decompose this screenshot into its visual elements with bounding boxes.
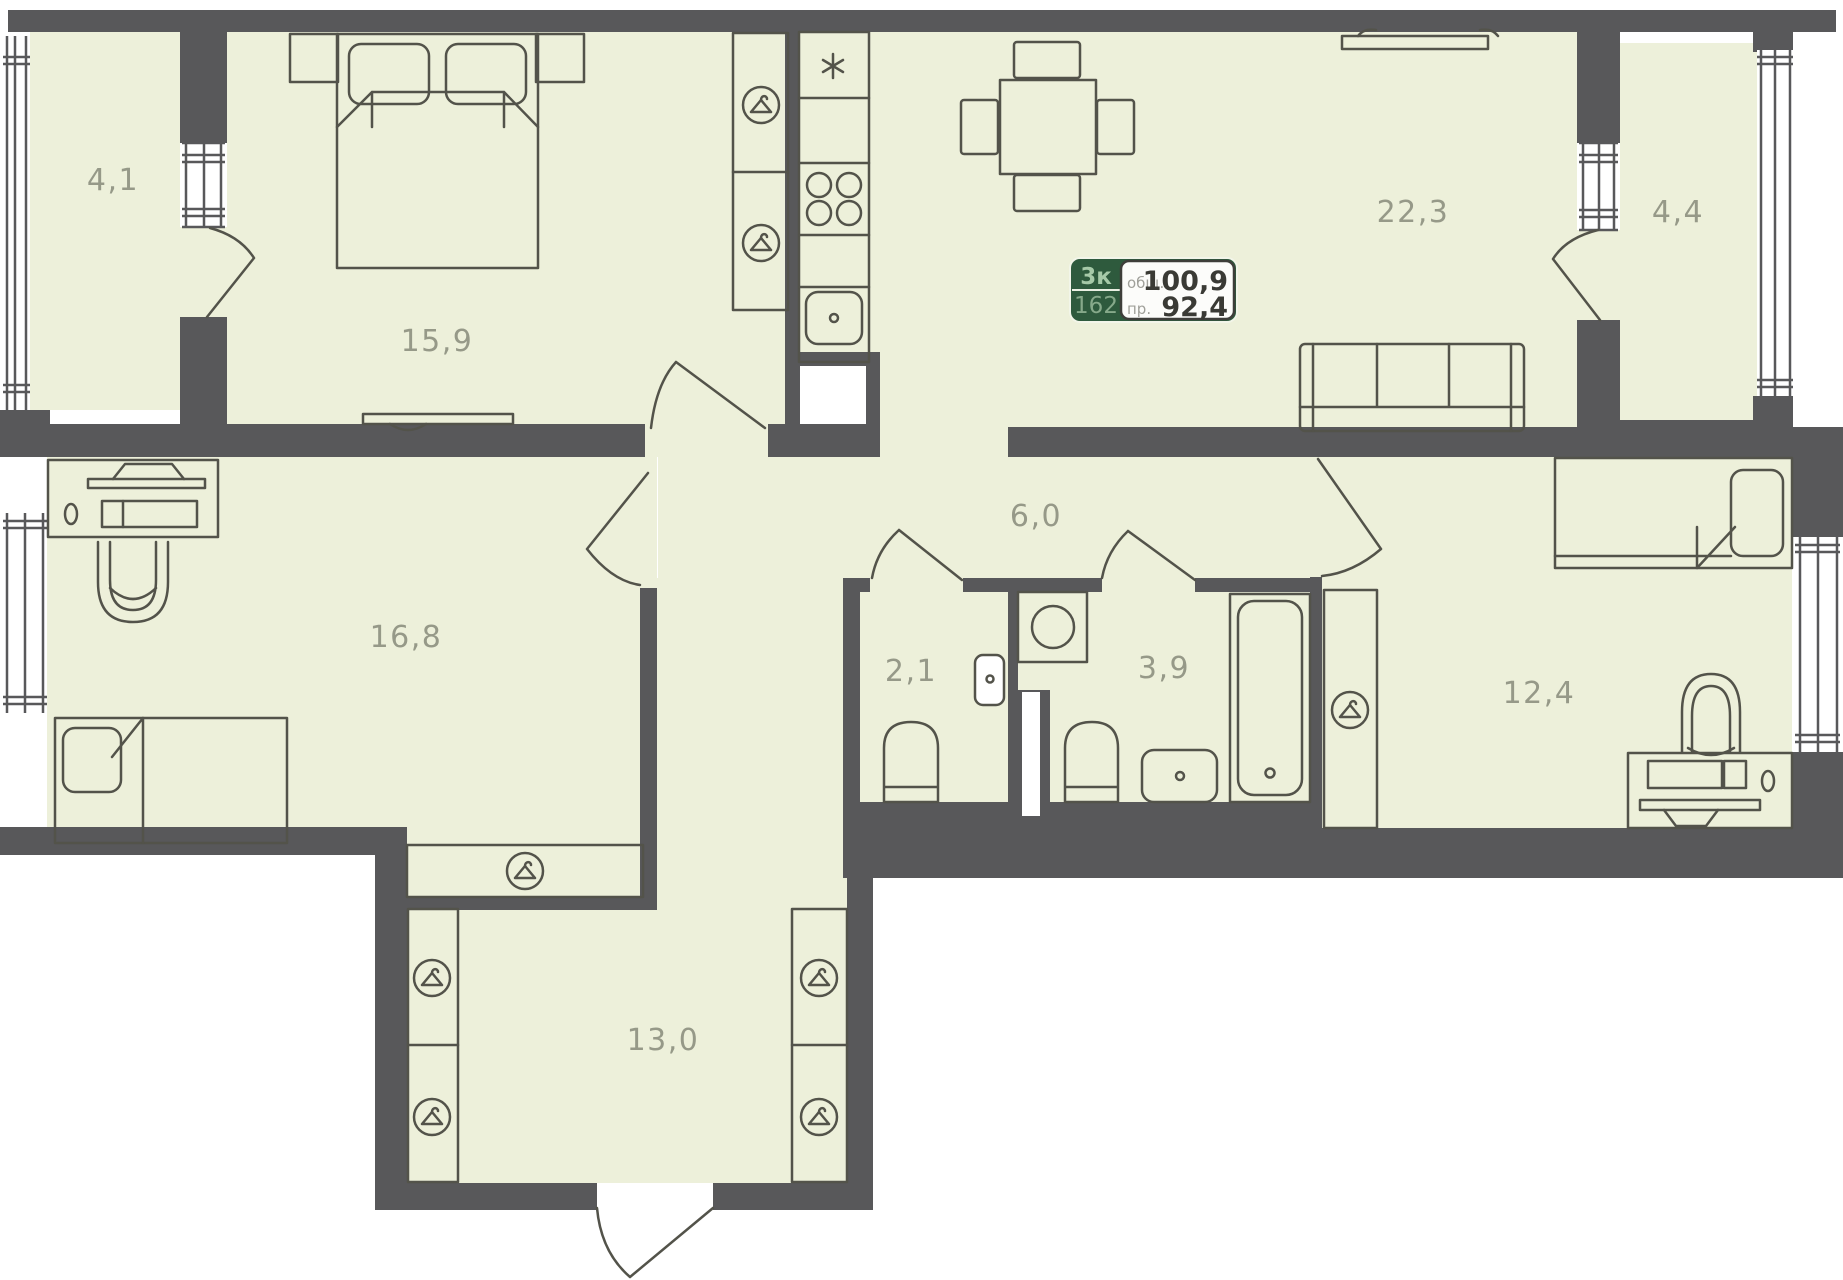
- room-label-balcony-right: 4,4: [1652, 195, 1704, 230]
- window-office: [3, 513, 47, 713]
- window-balcony-right: [1757, 50, 1793, 396]
- window-bedroom-second: [1795, 537, 1840, 752]
- badge-living-area: 92,4: [1161, 292, 1228, 323]
- window-balcony-left: [3, 36, 30, 410]
- room-label-kitchen-living: 22,3: [1377, 195, 1450, 230]
- area-badge: 3к 162 общ. 100,9 пр. 92,4: [1070, 258, 1237, 323]
- room-label-wc: 2,1: [885, 654, 937, 689]
- door-entry: [597, 1183, 713, 1277]
- washbasin-icon: [975, 655, 1004, 705]
- room-label-bedroom-main: 15,9: [401, 324, 474, 359]
- badge-rooms-count: 3к: [1080, 264, 1112, 290]
- floors: [30, 32, 1792, 1183]
- room-label-hallway: 6,0: [1010, 499, 1062, 534]
- room-label-bathroom: 3,9: [1138, 651, 1190, 686]
- floor-plan-page: 4,1 15,9 22,3 4,4 16,8 6,0 2,1 3,9 12,4 …: [0, 0, 1843, 1280]
- room-label-corridor: 13,0: [627, 1023, 700, 1058]
- room-label-bedroom-second: 12,4: [1503, 676, 1576, 711]
- badge-unit-number: 162: [1074, 293, 1118, 319]
- badge-living-label: пр.: [1127, 300, 1151, 318]
- window-bedroom-balcony: [182, 143, 225, 227]
- floor-plan-drawing: 4,1 15,9 22,3 4,4 16,8 6,0 2,1 3,9 12,4 …: [0, 0, 1843, 1280]
- window-living-balcony: [1579, 143, 1618, 230]
- room-label-office: 16,8: [370, 620, 443, 655]
- room-label-balcony-left: 4,1: [87, 163, 139, 198]
